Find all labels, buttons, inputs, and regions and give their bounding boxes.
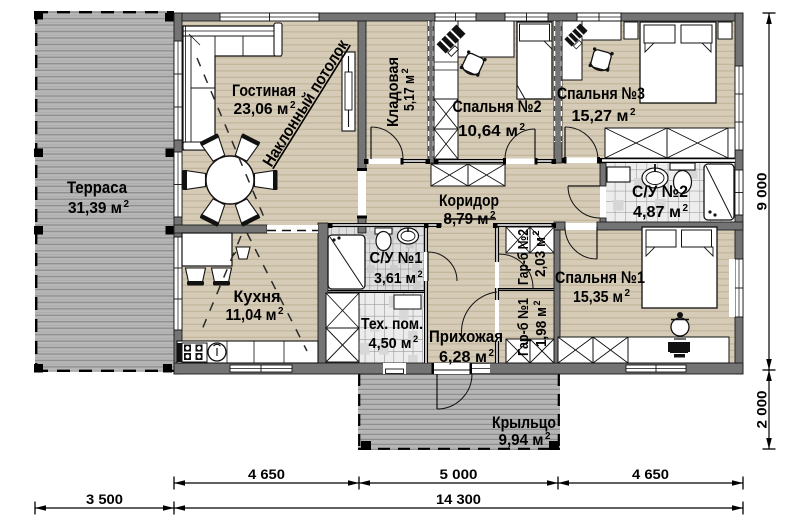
svg-text:5,17 м: 5,17 м [401,75,418,111]
svg-text:Коридор: Коридор [439,191,499,210]
svg-text:2: 2 [531,231,541,236]
svg-text:Спальня №3: Спальня №3 [557,84,645,103]
svg-text:2,03 м: 2,03 м [533,237,549,277]
svg-text:3 500: 3 500 [86,492,123,507]
svg-text:С/У №2: С/У №2 [632,182,688,201]
svg-text:Спальня №2: Спальня №2 [453,97,542,116]
svg-text:2: 2 [400,68,410,73]
svg-text:9,94 м: 9,94 м [499,432,544,449]
svg-text:2: 2 [124,199,130,210]
svg-text:14 300: 14 300 [436,492,481,507]
svg-text:Терраса: Терраса [67,178,127,197]
svg-text:9 000: 9 000 [755,173,770,211]
svg-text:15,35 м: 15,35 м [573,289,623,306]
svg-text:6,28 м: 6,28 м [439,349,487,366]
svg-text:Спальня №1: Спальня №1 [555,268,645,287]
svg-text:15,27 м: 15,27 м [572,108,629,125]
svg-text:3,61 м: 3,61 м [374,270,416,287]
svg-text:23,06 м: 23,06 м [234,101,289,118]
svg-text:4 650: 4 650 [248,467,285,482]
svg-text:2: 2 [278,306,284,317]
svg-text:Гар-б №1: Гар-б №1 [516,298,532,356]
svg-text:5 000: 5 000 [440,467,478,482]
svg-text:Кладовая: Кладовая [385,57,402,127]
svg-text:31,39 м: 31,39 м [68,200,122,217]
svg-text:Прихожая: Прихожая [429,327,503,346]
svg-text:1,98 м: 1,98 м [534,307,550,347]
svg-text:2: 2 [532,301,542,306]
svg-text:Тех. пом.: Тех. пом. [361,316,423,333]
svg-text:10,64 м: 10,64 м [458,123,518,140]
svg-text:2 000: 2 000 [755,391,770,429]
svg-text:Крыльцо: Крыльцо [492,413,556,432]
svg-text:2: 2 [625,288,631,299]
svg-text:2: 2 [545,431,551,442]
svg-text:4 650: 4 650 [632,467,669,482]
svg-text:Кухня: Кухня [234,287,281,306]
svg-text:2: 2 [630,107,636,118]
svg-text:2: 2 [413,334,418,344]
svg-text:Гостиная: Гостиная [232,81,296,100]
svg-text:2: 2 [520,122,526,133]
svg-text:4,50 м: 4,50 м [369,335,412,352]
svg-text:Гар-б №2: Гар-б №2 [516,229,532,285]
svg-text:11,04 м: 11,04 м [226,307,277,324]
svg-text:2: 2 [418,269,423,279]
svg-text:2: 2 [683,203,689,214]
svg-text:4,87 м: 4,87 м [633,204,681,221]
svg-text:2: 2 [489,348,495,359]
svg-text:С/У №1: С/У №1 [370,250,423,267]
